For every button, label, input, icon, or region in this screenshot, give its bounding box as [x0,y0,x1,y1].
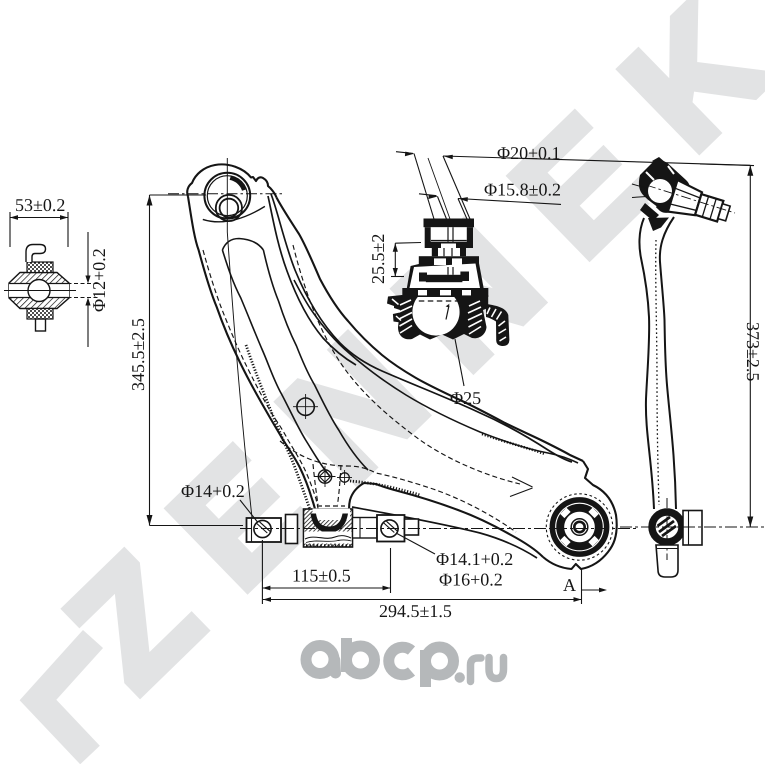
svg-text:373±2.5: 373±2.5 [743,322,763,381]
svg-text:Φ25: Φ25 [450,388,481,408]
svg-text:Φ12+0.2: Φ12+0.2 [89,248,109,312]
svg-text:Φ16+0.2: Φ16+0.2 [439,570,503,590]
svg-text:A: A [563,575,576,595]
svg-text:294.5±1.5: 294.5±1.5 [379,601,452,621]
svg-text:K ZENNEK: K ZENNEK [0,0,765,764]
svg-text:25.5±2: 25.5±2 [368,234,388,284]
svg-text:53±0.2: 53±0.2 [15,195,65,215]
svg-text:Φ20±0.1: Φ20±0.1 [497,143,561,163]
svg-text:Φ14+0.2: Φ14+0.2 [181,481,245,501]
svg-text:345.5±2.5: 345.5±2.5 [128,318,148,391]
svg-text:Φ14.1+0.2: Φ14.1+0.2 [436,549,513,569]
svg-text:115±0.5: 115±0.5 [292,566,351,586]
svg-text:Φ15.8±0.2: Φ15.8±0.2 [484,180,561,200]
